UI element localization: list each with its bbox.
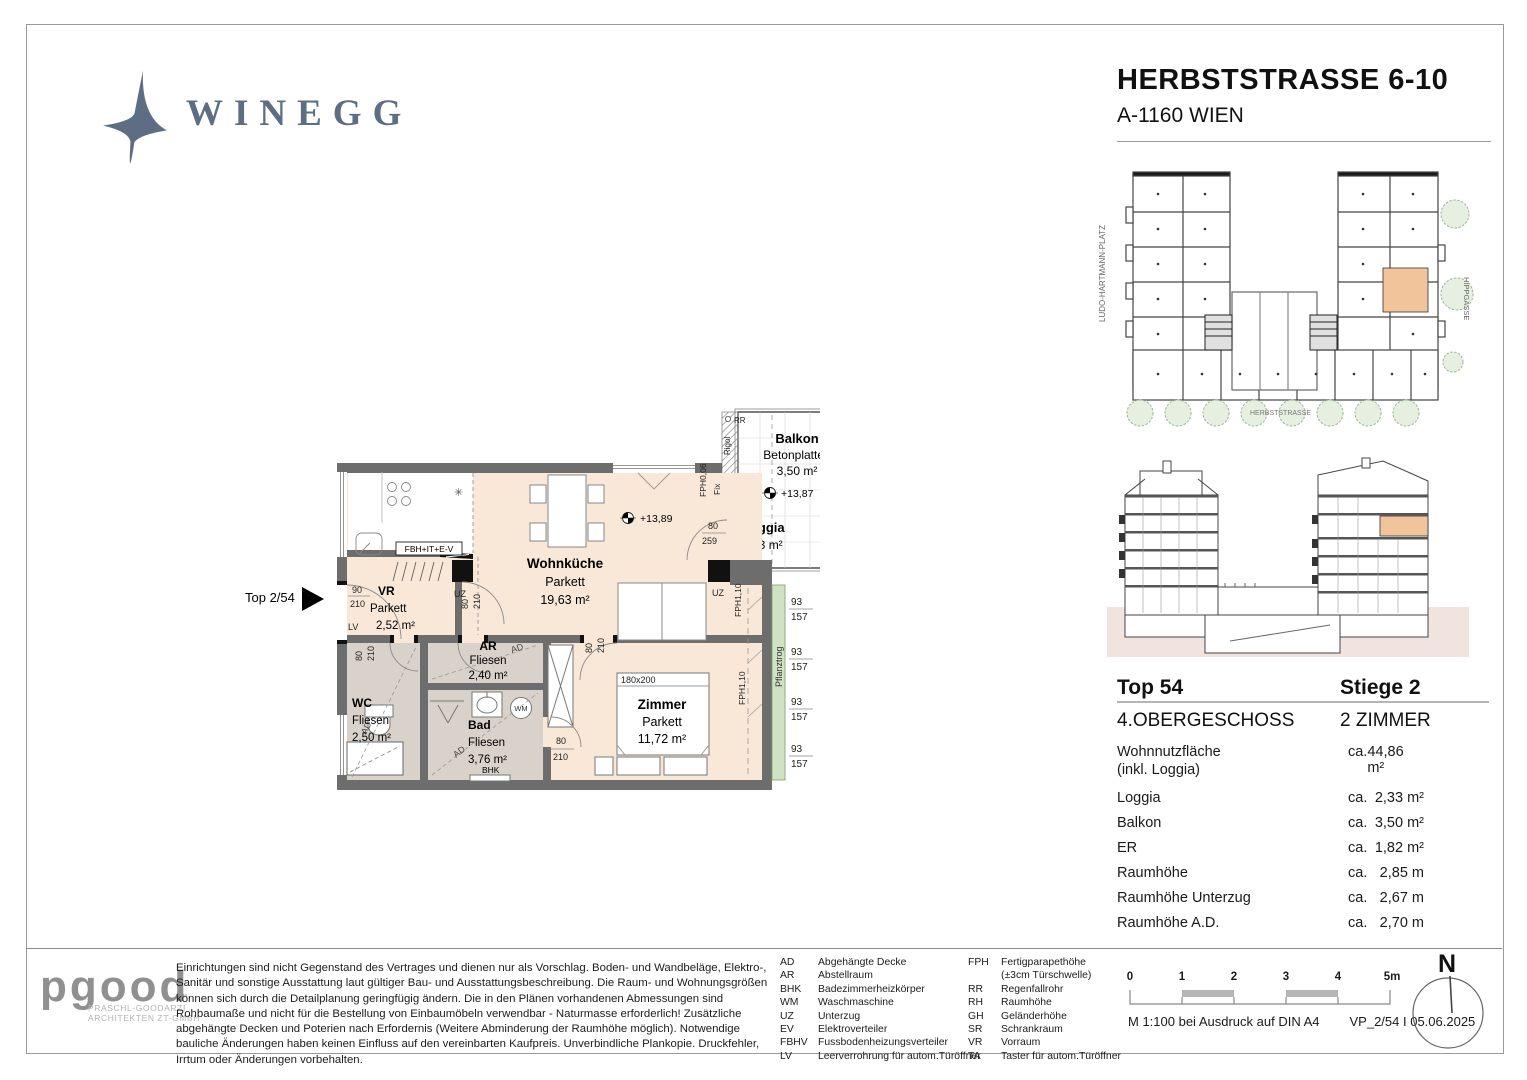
svg-text:Fix: Fix — [712, 483, 722, 495]
svg-text:93: 93 — [791, 597, 803, 608]
svg-text:Rigol: Rigol — [723, 437, 732, 455]
svg-text:FPH1,10: FPH1,10 — [733, 583, 743, 617]
abbreviation-legend-left: ADAbgehängte Decke ARAbstellraum BHKBade… — [780, 956, 981, 1063]
svg-text:80: 80 — [354, 651, 364, 661]
ca-prefix: ca. — [1348, 744, 1367, 776]
svg-text:BHK: BHK — [482, 765, 500, 775]
site-plan: LUDO-HARTMANN-PLATZ HERBSTSTRASSE HIPPGA… — [1095, 162, 1475, 428]
svg-text:Parkett: Parkett — [370, 603, 407, 615]
sofa-bed — [618, 583, 706, 640]
info-row-value: 3,50 m² — [1375, 815, 1424, 831]
info-row-value: 44,86 m² — [1367, 744, 1424, 776]
wardrobe — [548, 645, 573, 727]
svg-text:Fliesen: Fliesen — [352, 715, 389, 727]
floor-plan-sheet: { "page": { "brand": "WINEGG", "title": … — [0, 0, 1527, 1080]
elevation-marker-balcony: +13,87 — [762, 488, 814, 501]
info-row-value: 1,82 m² — [1375, 840, 1424, 856]
svg-text:157: 157 — [791, 759, 808, 770]
right-dims: 93 157 93 157 93 157 93 157 — [789, 597, 813, 770]
svg-text:Parkett: Parkett — [642, 715, 682, 729]
svg-text:Fliesen: Fliesen — [468, 737, 505, 749]
svg-text:UZ: UZ — [712, 588, 724, 598]
page-subtitle: A-1160 WIEN — [1117, 104, 1244, 128]
svg-text:3: 3 — [1283, 971, 1289, 983]
info-row-label: Loggia — [1117, 790, 1161, 806]
site-plan-highlighted-unit — [1383, 268, 1428, 312]
svg-text:259: 259 — [702, 536, 717, 546]
svg-text:Fliesen: Fliesen — [469, 655, 506, 667]
balkon-name: Balkon — [775, 431, 818, 446]
svg-text:Zimmer: Zimmer — [638, 697, 688, 712]
title-divider — [1117, 141, 1491, 142]
svg-text:Parkett: Parkett — [545, 575, 585, 589]
bhk-radiator — [470, 775, 510, 781]
disclaimer-text: Einrichtungen sind nicht Gegenstand des … — [176, 961, 780, 1068]
info-row-value: 2,67 m — [1380, 890, 1424, 906]
svg-text:210: 210 — [596, 638, 606, 653]
svg-text:210: 210 — [553, 752, 568, 762]
svg-text:UZ: UZ — [454, 589, 466, 599]
info-row-label: Raumhöhe — [1117, 865, 1188, 881]
svg-text:210: 210 — [366, 646, 376, 661]
north-label: N — [1438, 950, 1456, 978]
info-row-label: Raumhöhe A.D. — [1117, 915, 1219, 931]
svg-text:2,52 m²: 2,52 m² — [376, 620, 415, 632]
street-label-left: LUDO-HARTMANN-PLATZ — [1098, 225, 1107, 322]
footer-divider — [26, 948, 1502, 949]
svg-text:WM: WM — [514, 704, 527, 713]
winegg-logo-icon — [103, 70, 167, 185]
svg-text:RR: RR — [734, 416, 746, 425]
info-row-sublabel: (inkl. Loggia) — [1117, 762, 1200, 778]
svg-text:FBH+IT+E-V: FBH+IT+E-V — [405, 544, 454, 554]
svg-text:Bad: Bad — [468, 718, 491, 732]
floor-level: 4.OBERGESCHOSS — [1117, 710, 1294, 732]
svg-text:WC: WC — [352, 696, 372, 710]
svg-text:FPH0,06: FPH0,06 — [698, 463, 708, 497]
svg-text:Pflanztrog: Pflanztrog — [774, 646, 784, 687]
info-row-label: ER — [1117, 840, 1137, 856]
info-row-value: 2,70 m — [1380, 915, 1424, 931]
svg-text:180x200: 180x200 — [621, 675, 656, 685]
svg-text:FPH1,10: FPH1,10 — [737, 671, 747, 705]
svg-text:3,50 m²: 3,50 m² — [777, 464, 818, 478]
svg-text:+13,89: +13,89 — [640, 513, 673, 525]
print-scale: M 1:100 bei Ausdruck auf DIN A4 — [1128, 1014, 1320, 1029]
entrance-arrow-icon — [302, 587, 324, 611]
svg-text:Betonplatten: Betonplatten — [763, 448, 820, 462]
svg-text:210: 210 — [350, 599, 365, 609]
svg-text:0: 0 — [1127, 971, 1133, 983]
svg-text:Wohnküche: Wohnküche — [527, 556, 604, 571]
fbh-label-box: FBH+IT+E-V — [396, 542, 462, 555]
svg-text:93: 93 — [791, 697, 803, 708]
svg-text:4: 4 — [1335, 971, 1342, 983]
entrance-marker: Top 2/54 — [245, 587, 324, 611]
svg-text:93: 93 — [791, 647, 803, 658]
svg-text:11,72 m²: 11,72 m² — [638, 732, 686, 746]
svg-text:Top 2/54: Top 2/54 — [245, 590, 295, 605]
svg-text:157: 157 — [791, 612, 808, 623]
svg-text:LV: LV — [348, 622, 358, 632]
info-row-value: 2,33 m² — [1375, 790, 1424, 806]
svg-text:157: 157 — [791, 712, 808, 723]
svg-text:157: 157 — [791, 662, 808, 673]
svg-text:2,40 m²: 2,40 m² — [469, 670, 508, 682]
info-divider — [1117, 701, 1489, 703]
info-row-label: Balkon — [1117, 815, 1161, 831]
svg-text:2: 2 — [1231, 971, 1237, 983]
floor-plan: RR Rigol Balkon Betonplatten 3,50 m² 75 … — [240, 405, 820, 805]
stair-number: Stiege 2 — [1340, 676, 1421, 700]
section-highlighted-unit — [1380, 516, 1428, 536]
svg-text:90: 90 — [352, 585, 362, 595]
svg-text:2,50 m²: 2,50 m² — [352, 732, 391, 744]
svg-text:AR: AR — [479, 639, 497, 653]
winegg-logo-text: WINEGG — [186, 92, 412, 135]
info-row-label: Raumhöhe Unterzug — [1117, 890, 1251, 906]
info-row-label: Wohnnutzfläche — [1117, 744, 1221, 760]
svg-text:+13,87: +13,87 — [781, 488, 814, 500]
unit-number: Top 54 — [1117, 676, 1183, 700]
svg-text:5m: 5m — [1384, 971, 1401, 983]
svg-text:VR: VR — [378, 584, 395, 598]
svg-text:93: 93 — [791, 744, 803, 755]
svg-text:80: 80 — [708, 521, 718, 531]
north-arrow: N — [1403, 950, 1495, 1052]
abbreviation-legend-right: FPHFertigparapethöhe (±3cm Türschwelle) … — [968, 956, 1121, 1063]
info-row-value: 2,85 m — [1380, 865, 1424, 881]
section-view — [1095, 455, 1475, 670]
street-label-bottom: HERBSTSTRASSE — [1250, 410, 1311, 417]
svg-text:80: 80 — [556, 736, 566, 746]
elevation-marker-inside: +13,89 — [620, 513, 673, 526]
svg-text:80: 80 — [584, 643, 594, 653]
sink-icon: ✳ — [454, 487, 463, 499]
svg-text:1: 1 — [1179, 971, 1186, 983]
svg-text:210: 210 — [472, 594, 482, 609]
svg-text:19,63 m²: 19,63 m² — [540, 593, 589, 607]
architect-name: PRASCHL-GOODARZI — [88, 1003, 186, 1013]
svg-text:80: 80 — [460, 599, 470, 609]
street-label-right: HIPPGASSE — [1462, 277, 1471, 320]
page-title: HERBSTSTRASSE 6-10 — [1117, 64, 1448, 97]
scale-bar: 0 1 2 3 4 5m — [1125, 968, 1410, 1014]
room-count: 2 ZIMMER — [1340, 710, 1431, 732]
compass-needle — [1450, 976, 1452, 1013]
